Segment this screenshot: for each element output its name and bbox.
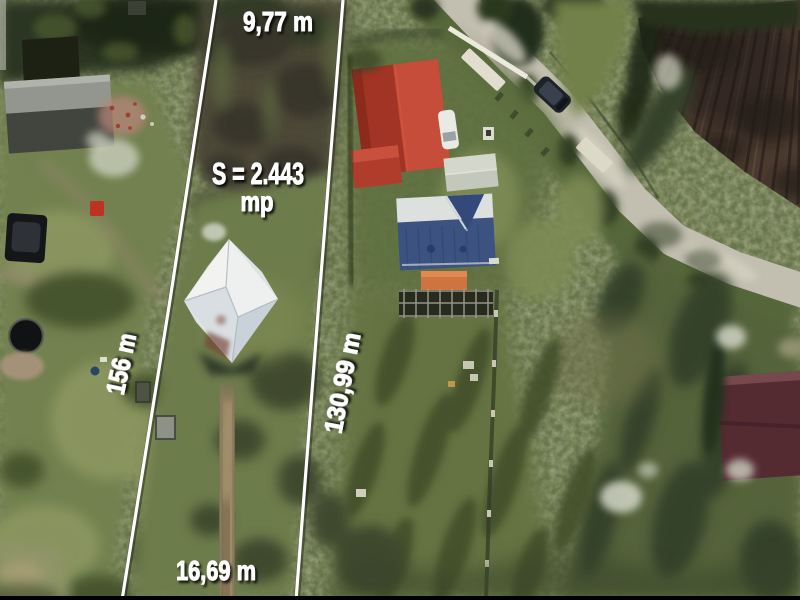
svg-text:16,69 m: 16,69 m — [176, 555, 256, 586]
svg-text:9,77 m: 9,77 m — [243, 6, 313, 37]
svg-text:mp: mp — [241, 186, 274, 217]
